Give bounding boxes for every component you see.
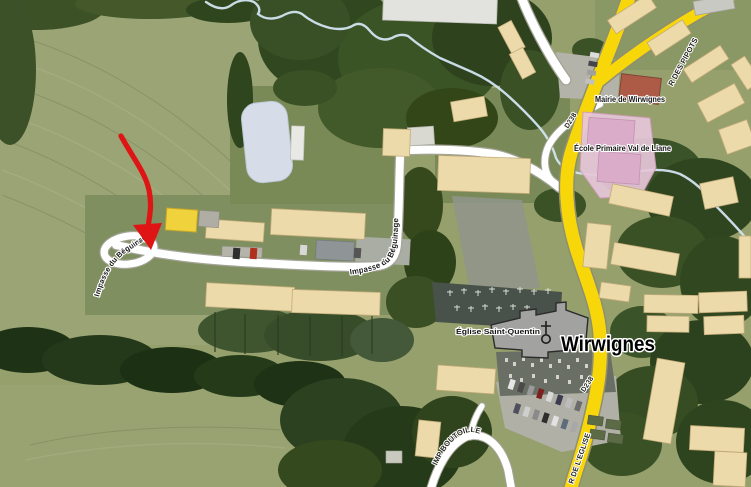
satellite-map-view[interactable]: Mairie de Wirwignes École Primaire Val d…: [0, 0, 751, 487]
mairie-label: Mairie de Wirwignes: [595, 95, 666, 104]
town-label: Wirwignes: [561, 333, 655, 356]
pond: [240, 100, 294, 184]
ecole-label: École Primaire Val de Liane: [574, 144, 672, 153]
highlighted-building: [165, 208, 197, 232]
eglise-label: Église Saint-Quentin: [456, 327, 540, 336]
